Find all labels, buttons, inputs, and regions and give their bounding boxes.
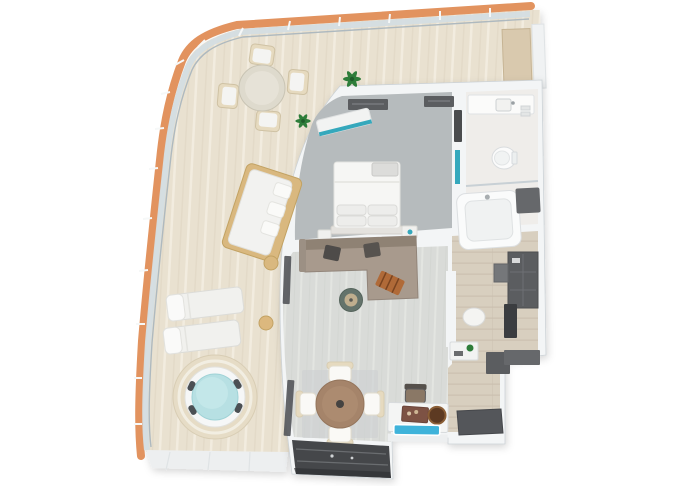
sofa-arm [299, 239, 306, 272]
desk-chair [404, 384, 426, 403]
table-marble-top [245, 71, 279, 105]
side-table [264, 256, 278, 270]
shelf-item [512, 258, 520, 263]
console-table [450, 342, 478, 360]
living-entry-wall [446, 271, 456, 347]
dining-chair [296, 391, 316, 417]
shoe-cabinet-top [504, 350, 540, 365]
door-handle [351, 457, 354, 460]
double-bed [331, 162, 403, 234]
bar-sink [394, 425, 440, 436]
side-table [259, 316, 273, 330]
vanity-desk [494, 264, 508, 282]
deck-lower-platform [146, 450, 288, 472]
dining-chair [364, 391, 384, 417]
plant-pot [467, 345, 474, 352]
entry-door [504, 304, 517, 338]
toilet [492, 147, 517, 169]
mirror [455, 150, 460, 184]
dining-chair [327, 362, 353, 382]
hot-tub [173, 355, 257, 439]
dining-area [296, 362, 384, 446]
serving-tray [402, 406, 429, 423]
toiletries [521, 106, 530, 110]
faucet [511, 101, 515, 105]
outdoor-chair [217, 83, 239, 109]
ice-bowl [428, 407, 445, 424]
shower-mat [515, 187, 540, 213]
teal-lamp [408, 230, 413, 235]
partition-panel [502, 29, 532, 87]
window-band [292, 440, 391, 478]
tv-panel [454, 110, 462, 142]
suite-floorplan [0, 0, 680, 486]
bathtub [456, 190, 522, 250]
vanity-stool [463, 308, 485, 326]
basin [496, 99, 511, 111]
dark-pillow [363, 242, 381, 258]
outdoor-chair [287, 69, 309, 95]
coffee-table [340, 289, 363, 312]
outdoor-chair [255, 110, 281, 132]
door-handle [330, 454, 333, 457]
floorplan-stage [0, 0, 680, 486]
partition-ledge [532, 24, 546, 88]
dining-table [316, 380, 364, 428]
toiletries [521, 112, 530, 116]
folded-blanket [372, 163, 398, 176]
water-highlight [196, 377, 228, 409]
doormat [457, 409, 503, 435]
outdoor-chair [249, 43, 276, 66]
console-item [454, 351, 463, 356]
